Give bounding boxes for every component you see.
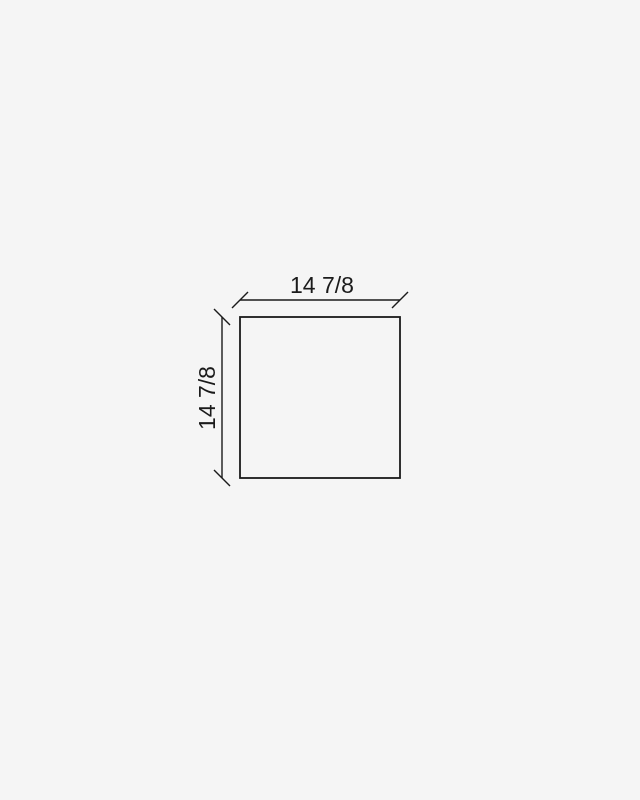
width-dimension-label: 14 7/8: [290, 272, 354, 298]
drawing-canvas: 14 7/8 14 7/8: [0, 0, 640, 800]
shape-outline: [240, 317, 400, 478]
dimension-diagram: 14 7/8 14 7/8: [0, 0, 640, 800]
height-dimension-label: 14 7/8: [194, 366, 220, 430]
width-dimension: 14 7/8: [232, 272, 408, 308]
height-dimension: 14 7/8: [194, 309, 230, 486]
